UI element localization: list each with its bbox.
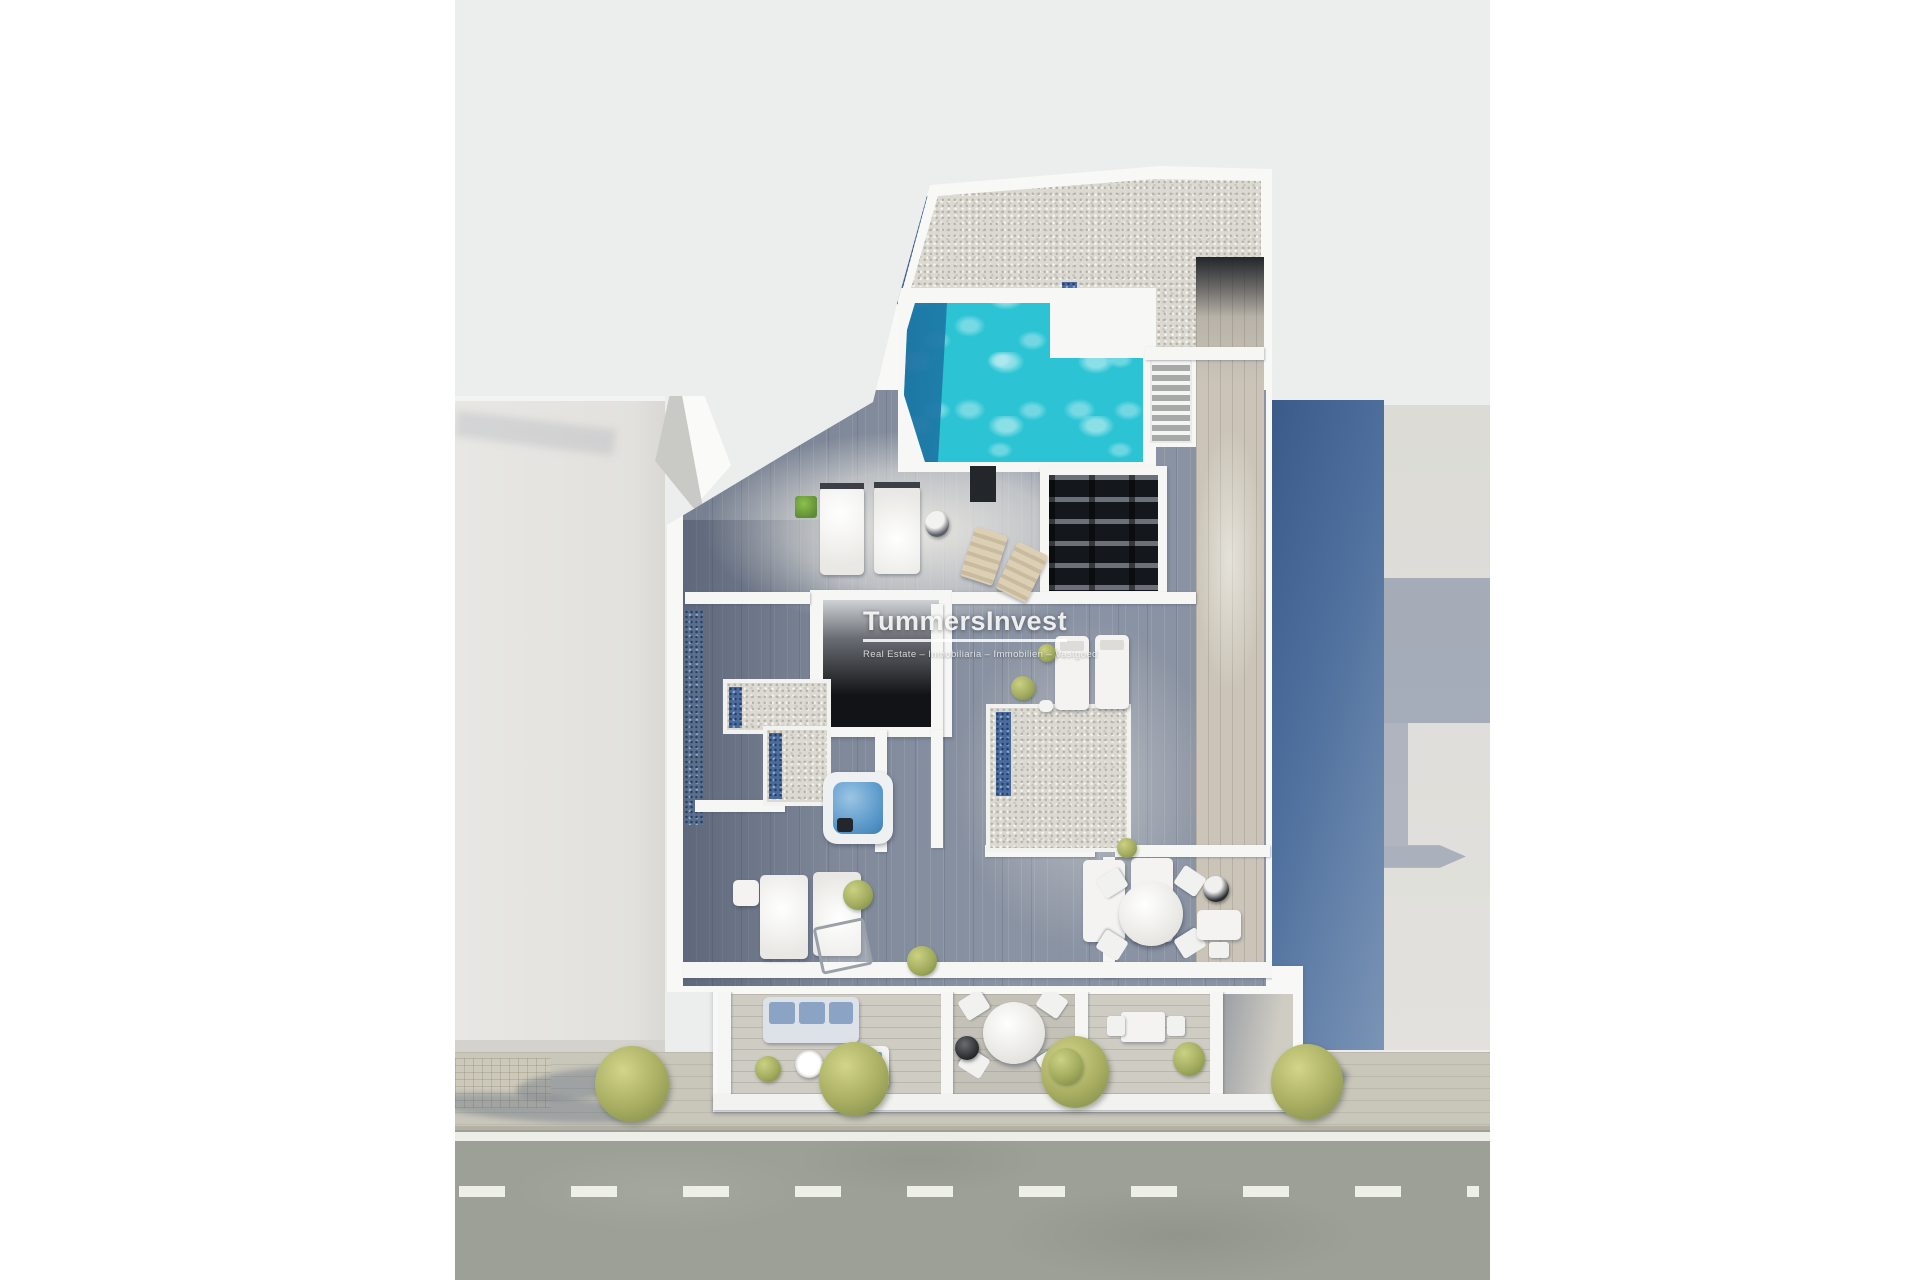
building-south-wall <box>683 962 1272 978</box>
bistro-chair <box>1107 1016 1125 1036</box>
plant <box>1011 676 1035 700</box>
sun-bed-frame <box>874 482 920 488</box>
street-dashed-center-line <box>459 1186 1479 1197</box>
balcony-divider <box>1210 990 1223 1100</box>
watermark-title: TummersInvest <box>863 606 1067 642</box>
roof-hatch <box>970 466 996 502</box>
street-tree <box>1271 1044 1343 1120</box>
building-shadow-strip <box>1384 723 1408 845</box>
street-tree <box>595 1046 669 1122</box>
sofa-cushion <box>829 1002 853 1024</box>
watermark: TummersInvest Real Estate – Inmobiliaria… <box>863 606 1083 660</box>
black-side-table <box>955 1036 979 1060</box>
corridor-doorway-shadow <box>1196 257 1264 317</box>
side-table <box>733 880 759 906</box>
planter-box <box>795 496 817 518</box>
terrace-dining-table <box>1119 882 1183 946</box>
wall-roof-corridor <box>1145 347 1264 360</box>
corridor-highlight <box>1196 430 1264 690</box>
interior-wall <box>1115 845 1270 857</box>
watermark-subtitle: Real Estate – Inmobiliaria – Immobilien … <box>863 649 1083 660</box>
plant <box>843 880 873 910</box>
scene: TummersInvest Real Estate – Inmobiliaria… <box>455 0 1490 1280</box>
gravel-patch-left-T <box>727 683 827 730</box>
left-neighbor-roof-edge <box>455 396 665 401</box>
desk <box>1197 910 1241 940</box>
balcony-divider <box>719 990 731 1100</box>
left-edge-gravel-walkway <box>685 610 703 825</box>
plant <box>1117 838 1137 858</box>
gravel-patch-border <box>769 733 782 799</box>
bistro-table <box>1121 1012 1165 1042</box>
balcony-tree <box>1049 1048 1083 1084</box>
render-canvas: TummersInvest Real Estate – Inmobiliaria… <box>0 0 1920 1280</box>
black-pouf-table <box>1203 876 1229 902</box>
sun-bed <box>874 486 920 574</box>
sofa-cushion <box>769 1002 795 1024</box>
dining-table-round <box>983 1002 1045 1064</box>
street-tree <box>819 1042 889 1116</box>
interior-wall <box>952 592 1196 604</box>
sun-bed <box>760 875 808 959</box>
balcony-plant <box>755 1056 781 1082</box>
interior-wall <box>931 730 943 848</box>
building-shadow-band <box>1384 578 1490 723</box>
street-edge-line <box>455 1132 1490 1141</box>
street <box>455 1130 1490 1280</box>
jacuzzi-cover-item <box>837 818 853 832</box>
gravel-patch-border <box>729 687 742 728</box>
sun-bed <box>820 487 864 575</box>
balcony-tree <box>1173 1042 1205 1076</box>
bed-pillow <box>1100 640 1124 650</box>
balcony-divider <box>941 990 953 1100</box>
desk-chair <box>1209 942 1229 958</box>
right-neighbor-blue-wall <box>1270 400 1384 1050</box>
sofa-cushion <box>799 1002 825 1024</box>
gravel-patch-border <box>996 712 1011 796</box>
pouf <box>925 511 949 537</box>
roof-stairs-steps <box>1152 361 1190 441</box>
small-table <box>1039 700 1053 712</box>
balcony-parapet <box>713 1094 1303 1110</box>
sun-bed-frame <box>820 483 864 489</box>
bistro-chair <box>1167 1016 1185 1036</box>
interior-wall <box>685 592 810 604</box>
plant <box>907 946 937 976</box>
west-wall-upper <box>861 296 898 402</box>
left-neighbor-roof <box>455 399 665 1058</box>
louvered-skylight-room-interior <box>1049 475 1158 591</box>
